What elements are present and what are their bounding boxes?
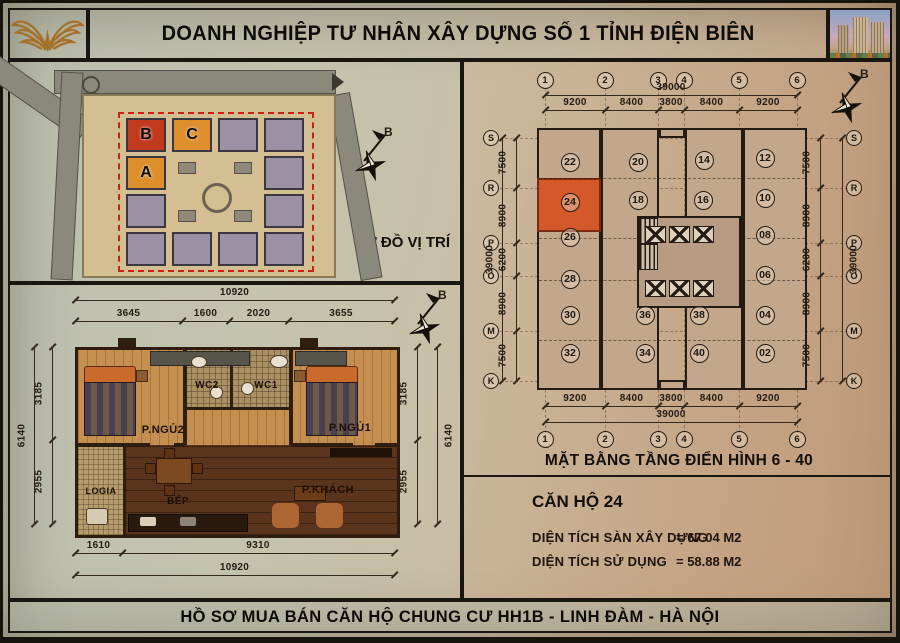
scanned-document-page: DOANH NGHIỆP TƯ NHÂN XÂY DỰNG SỐ 1 TỈNH …: [0, 0, 900, 643]
site-block: [126, 194, 166, 228]
bay-height-value: 7500: [498, 336, 509, 376]
bay-height-line: [820, 138, 821, 381]
elevator-core: [637, 216, 741, 308]
grid-col-bubble-5: 5: [731, 431, 748, 448]
unit-bubble-04: 04: [756, 306, 775, 325]
photo-tower: [838, 25, 849, 55]
bay-height-line: [516, 138, 517, 381]
room-label: P.KHÁCH: [283, 484, 373, 496]
building-plan: 2224262830322018363414163840121008060402: [537, 128, 807, 390]
stair-icon: [639, 244, 658, 270]
room-label: P.NGỦ2: [118, 424, 208, 436]
bay-width-value: 9200: [748, 97, 788, 108]
room-label: LOGIA: [56, 486, 146, 496]
chair: [164, 448, 175, 459]
interior-wall: [185, 407, 291, 410]
site-structure: [234, 210, 252, 222]
toilet-icon: [191, 356, 207, 368]
footer-title: HỒ SƠ MUA BÁN CĂN HỘ CHUNG CƯ HH1B - LIN…: [180, 607, 719, 627]
unit-bubble-28: 28: [561, 270, 580, 289]
kitchen-sink: [140, 517, 156, 526]
unit-bubble-34: 34: [636, 344, 655, 363]
unit-info-label: DIỆN TÍCH SỬ DỤNG: [532, 554, 667, 569]
apt-bay-value: 1610: [79, 540, 119, 551]
apartment-plan-panel: P.NGỦ2WC2WC1P.NGỦ1LOGIABẾPP.KHÁCH1092036…: [8, 283, 462, 600]
unit-bubble-10: 10: [756, 189, 775, 208]
bay-width-value: 9200: [748, 393, 788, 404]
unit-bubble-24: 24: [561, 193, 580, 212]
bay-height-value: 7500: [498, 143, 509, 183]
unit-bubble-18: 18: [629, 191, 648, 210]
grid-col-bubble-1: 1: [537, 72, 554, 89]
apt-width-total-line: [75, 300, 394, 301]
apt-side-total-line: [437, 347, 438, 524]
total-height-value: 39000: [485, 239, 496, 279]
bay-height-value: 8900: [802, 195, 813, 235]
apt-side-value: 3185: [399, 373, 410, 413]
apt-side-line: [52, 347, 53, 524]
bay-width-line: [545, 110, 797, 111]
grid-row-bubble-S: S: [846, 130, 862, 146]
site-block: [264, 194, 304, 228]
chair: [192, 463, 203, 474]
bay-height-value: 7500: [802, 336, 813, 376]
unit-bubble-14: 14: [695, 151, 714, 170]
compass-label: B: [438, 288, 447, 302]
unit-bubble-08: 08: [756, 226, 775, 245]
grid-col-bubble-2: 2: [597, 431, 614, 448]
bay-width-value: 8400: [612, 97, 652, 108]
center-bridge: [659, 380, 685, 390]
site-block: [172, 232, 212, 266]
site-block: [126, 232, 166, 266]
building-wing: [743, 128, 807, 390]
unit-info-value: = 58.88 M2: [676, 554, 741, 569]
dim-tick: [391, 317, 398, 324]
road-arrow-icon: [332, 73, 353, 91]
dim-tick: [414, 520, 421, 527]
interior-wall: [375, 443, 397, 447]
grid-col-bubble-3: 3: [650, 431, 667, 448]
total-width-value: 39000: [651, 82, 691, 93]
dining-table: [156, 458, 192, 484]
chair: [145, 463, 156, 474]
dim-tick: [391, 571, 398, 578]
apt-bay-value: 9310: [238, 540, 278, 551]
apt-bay-value: 1600: [186, 308, 226, 319]
elevator-icon: [645, 226, 666, 243]
apt-side-total-line: [34, 347, 35, 524]
unit-bubble-32: 32: [561, 344, 580, 363]
apt-bay-value: 2020: [239, 308, 279, 319]
bay-height-value: 8900: [802, 283, 813, 323]
bay-width-value: 9200: [555, 393, 595, 404]
grid-row-bubble-M: M: [846, 323, 862, 339]
washer-icon: [86, 508, 108, 525]
elevator-icon: [693, 280, 714, 297]
section-divider: [464, 475, 890, 477]
apt-width-total-line: [75, 575, 394, 576]
company-logo-box: [8, 8, 88, 60]
grid-col-bubble-1: 1: [537, 431, 554, 448]
room-label: WC1: [221, 380, 311, 391]
grid-col-bubble-4: 4: [676, 431, 693, 448]
elevator-icon: [669, 226, 690, 243]
unit-info-value: = 67.04 M2: [676, 530, 741, 545]
site-block: [264, 118, 304, 152]
site-structure: [234, 162, 252, 174]
wardrobe: [295, 351, 347, 366]
site-block-A: A: [126, 156, 166, 190]
roundabout-icon: [202, 183, 232, 213]
dim-tick: [391, 549, 398, 556]
apt-side-total-value: 6140: [444, 415, 455, 455]
total-width-line: [545, 422, 797, 423]
elevator-icon: [693, 226, 714, 243]
apt-side-line: [417, 347, 418, 524]
grid-col-bubble-6: 6: [789, 72, 806, 89]
unit-bubble-16: 16: [694, 191, 713, 210]
total-height-line: [842, 138, 843, 381]
unit-divider: [539, 178, 805, 179]
gold-wings-icon: [10, 10, 85, 57]
dim-tick: [391, 296, 398, 303]
unit-bubble-02: 02: [756, 344, 775, 363]
interior-wall: [78, 443, 150, 447]
site-structure: [178, 210, 196, 222]
bay-height-value: 8900: [498, 195, 509, 235]
site-structure: [178, 162, 196, 174]
grid-col-bubble-2: 2: [597, 72, 614, 89]
bay-height-value: 8900: [498, 283, 509, 323]
grid-row-bubble-K: K: [846, 373, 862, 389]
dim-tick: [49, 520, 56, 527]
apt-bay-line: [75, 321, 394, 322]
armchair: [271, 502, 300, 529]
apt-side-value: 3185: [34, 373, 45, 413]
bay-width-value: 9200: [555, 97, 595, 108]
apt-side-total-value: 6140: [17, 415, 28, 455]
unit-bubble-22: 22: [561, 153, 580, 172]
bay-width-value: 8400: [692, 97, 732, 108]
road-junction-icon: [82, 76, 100, 94]
site-block: [264, 156, 304, 190]
room-label: P.NGỦ1: [305, 422, 395, 434]
site-block: [264, 232, 304, 266]
apt-width-total-value: 10920: [215, 562, 255, 573]
compass-label: B: [384, 125, 393, 139]
bay-width-value: 8400: [612, 393, 652, 404]
unit-info-title: CĂN HỘ 24: [532, 492, 672, 512]
interior-wall: [174, 443, 185, 447]
nightstand: [136, 370, 148, 382]
photo-tower: [853, 17, 868, 55]
apartment-floor-plan: P.NGỦ2WC2WC1P.NGỦ1LOGIABẾPP.KHÁCH: [75, 347, 400, 538]
unit-bubble-30: 30: [561, 306, 580, 325]
unit-bubble-38: 38: [690, 306, 709, 325]
toilet-icon: [270, 355, 288, 368]
unit-bubble-40: 40: [690, 344, 709, 363]
wall-stub: [300, 338, 318, 350]
chair: [164, 485, 175, 496]
bay-height-value: 7500: [802, 143, 813, 183]
site-block: [218, 232, 258, 266]
dim-tick: [434, 520, 441, 527]
dim-tick: [31, 520, 38, 527]
site-block-C: C: [172, 118, 212, 152]
grid-col-bubble-6: 6: [789, 431, 806, 448]
wall-stub: [118, 338, 136, 350]
photo-tower: [871, 22, 884, 55]
apt-width-total-value: 10920: [215, 287, 255, 298]
unit-bubble-26: 26: [561, 228, 580, 247]
company-title: DOANH NGHIỆP TƯ NHÂN XÂY DỰNG SỐ 1 TỈNH …: [161, 22, 754, 46]
floor-plan-caption: MẶT BẰNG TẦNG ĐIỂN HÌNH 6 - 40: [519, 452, 839, 470]
bay-width-value: 8400: [692, 393, 732, 404]
elevator-icon: [669, 280, 690, 297]
unit-bubble-36: 36: [636, 306, 655, 325]
interior-wall: [291, 443, 353, 447]
site-block-B: B: [126, 118, 166, 152]
compass-label: B: [860, 67, 869, 81]
apt-bay-value: 3655: [321, 308, 361, 319]
grid-col-bubble-5: 5: [731, 72, 748, 89]
bay-width-value: 3800: [651, 393, 691, 404]
total-width-value: 39000: [651, 409, 691, 420]
document-header: DOANH NGHIỆP TƯ NHÂN XÂY DỰNG SỐ 1 TỈNH …: [88, 8, 828, 60]
apt-side-value: 2955: [399, 462, 410, 502]
apt-side-value: 2955: [34, 462, 45, 502]
unit-bubble-06: 06: [756, 266, 775, 285]
road-diagonal-right: [328, 92, 382, 281]
room-label: BẾP: [133, 496, 223, 507]
document-footer: HỒ SƠ MUA BÁN CĂN HỘ CHUNG CƯ HH1B - LIN…: [8, 600, 892, 633]
bay-width-value: 3800: [651, 97, 691, 108]
bay-height-value: 6200: [802, 239, 813, 279]
armchair: [315, 502, 344, 529]
tv-console: [330, 448, 392, 457]
apt-bay-value: 3645: [109, 308, 149, 319]
unit-bubble-20: 20: [629, 153, 648, 172]
grid-row-bubble-R: R: [846, 180, 862, 196]
photo-trees: [830, 53, 892, 60]
typical-floor-plan-panel: MẶT BẰNG TẦNG ĐIỂN HÌNH 6 - 40 CĂN HỘ 24…: [462, 60, 892, 600]
bay-width-line: [545, 406, 797, 407]
center-bridge: [659, 128, 685, 138]
site-plan-panel: ĐƯỜNG VÀO BÁN ĐẢO LINH ĐÀM ĐƯỜNG NGUYỄN …: [8, 60, 462, 283]
bay-height-value: 6200: [498, 239, 509, 279]
site-block: [218, 118, 258, 152]
interior-wall: [289, 350, 293, 445]
unit-divider: [539, 340, 805, 341]
stove-icon: [180, 517, 196, 526]
total-height-value: 39000: [849, 239, 860, 279]
elevator-icon: [645, 280, 666, 297]
building-photo: [828, 8, 892, 60]
total-width-line: [545, 95, 797, 96]
unit-bubble-12: 12: [756, 149, 775, 168]
